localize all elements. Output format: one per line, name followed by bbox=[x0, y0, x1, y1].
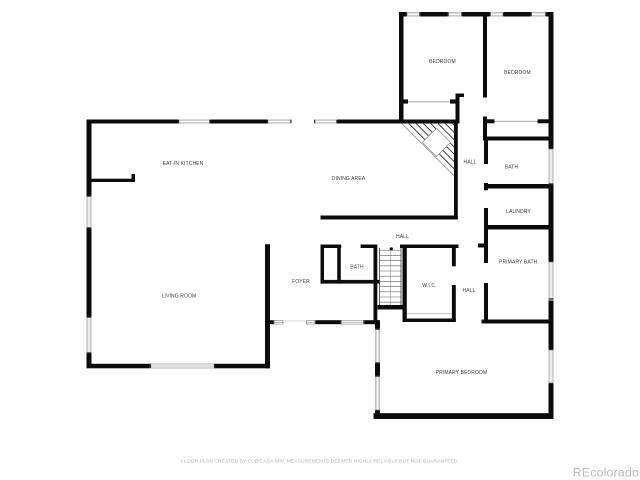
svg-text:FLOOR PLAN CREATED BY CUBICASA: FLOOR PLAN CREATED BY CUBICASA APP. MEAS… bbox=[181, 458, 459, 464]
svg-text:BATH: BATH bbox=[505, 164, 519, 170]
svg-text:HALL: HALL bbox=[464, 159, 477, 165]
svg-text:REcolorado: REcolorado bbox=[573, 465, 639, 479]
svg-text:LIVING ROOM: LIVING ROOM bbox=[162, 293, 197, 299]
svg-text:DINING AREA: DINING AREA bbox=[332, 176, 366, 182]
svg-text:HALL: HALL bbox=[463, 288, 476, 294]
svg-text:BEDROOM: BEDROOM bbox=[429, 59, 456, 65]
svg-text:PRIMARY BEDROOM: PRIMARY BEDROOM bbox=[436, 370, 488, 376]
svg-text:BATH: BATH bbox=[350, 265, 364, 271]
svg-text:BEDROOM: BEDROOM bbox=[504, 70, 531, 76]
svg-text:EAT-IN KITCHEN: EAT-IN KITCHEN bbox=[163, 161, 204, 167]
svg-text:LAUNDRY: LAUNDRY bbox=[506, 209, 531, 215]
svg-text:FOYER: FOYER bbox=[292, 279, 310, 285]
svg-text:W.I.C.: W.I.C. bbox=[422, 283, 436, 289]
svg-text:HALL: HALL bbox=[396, 234, 409, 240]
svg-text:PRIMARY BATH: PRIMARY BATH bbox=[499, 259, 538, 265]
